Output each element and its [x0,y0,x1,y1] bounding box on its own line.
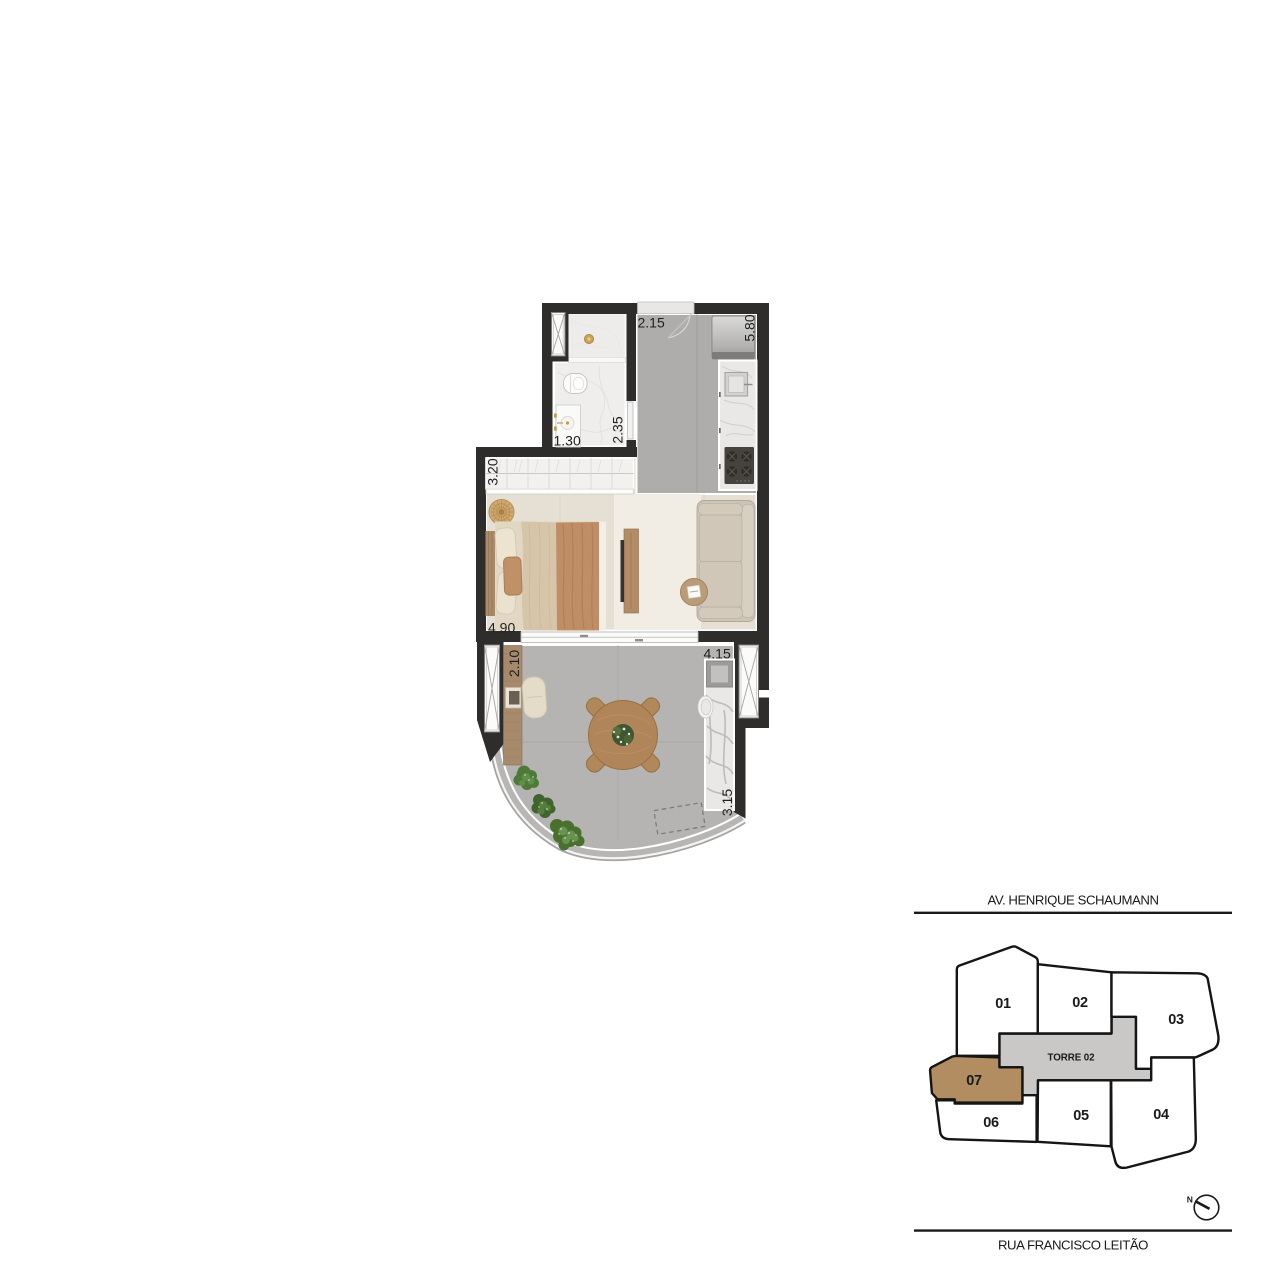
svg-text:2.10: 2.10 [506,650,522,677]
svg-text:06: 06 [983,1115,999,1131]
svg-text:07: 07 [966,1073,982,1089]
svg-text:01: 01 [995,996,1011,1012]
svg-text:2.15: 2.15 [638,315,665,331]
svg-text:RUA FRANCISCO LEITÃO: RUA FRANCISCO LEITÃO [998,1238,1148,1253]
svg-text:04: 04 [1153,1107,1169,1123]
svg-text:2.35: 2.35 [610,416,626,443]
svg-text:05: 05 [1073,1108,1089,1124]
svg-text:3.20: 3.20 [485,458,501,485]
svg-text:AV. HENRIQUE SCHAUMANN: AV. HENRIQUE SCHAUMANN [987,893,1158,908]
svg-text:5.80: 5.80 [742,314,758,341]
svg-text:4.90: 4.90 [488,620,515,636]
svg-text:4.15: 4.15 [704,646,731,662]
svg-text:1.30: 1.30 [554,433,581,449]
svg-text:N: N [1187,1195,1193,1205]
svg-text:02: 02 [1072,995,1088,1011]
svg-text:03: 03 [1168,1012,1184,1028]
svg-text:3.15: 3.15 [719,789,735,816]
svg-text:TORRE 02: TORRE 02 [1048,1053,1096,1064]
